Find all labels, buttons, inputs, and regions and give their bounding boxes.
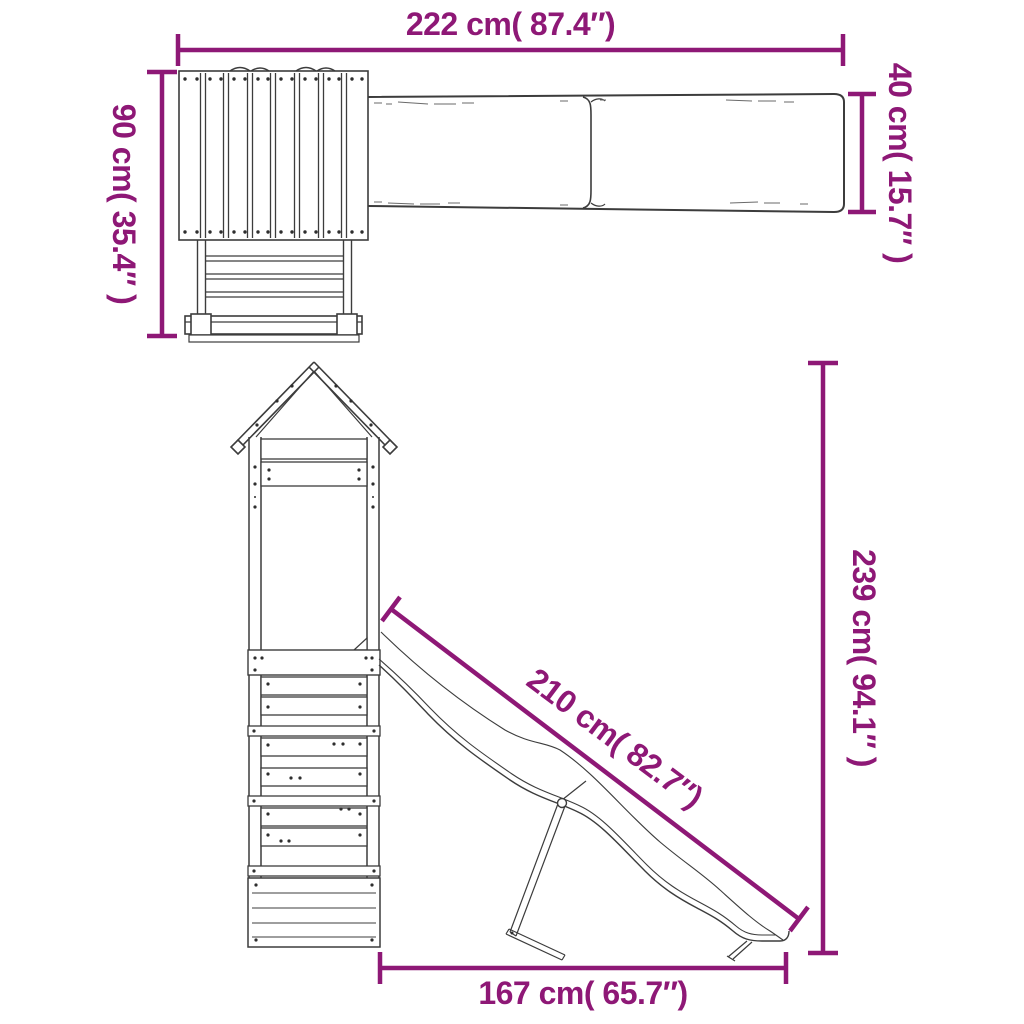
gusset-triangle bbox=[354, 638, 367, 650]
platform-band bbox=[248, 638, 380, 675]
leg-bracket bbox=[562, 781, 586, 800]
dim-line-slide-width bbox=[848, 94, 876, 212]
top-view bbox=[179, 68, 844, 343]
roof-top-view bbox=[179, 68, 368, 241]
diagram-canvas: 222 cm( 87.4″) 90 cm( 35.4″ ) 40 cm( 15.… bbox=[0, 0, 1024, 1024]
eave-cap-left bbox=[231, 440, 245, 454]
dimension-label-base-depth: 167 cm( 65.7″) bbox=[380, 977, 786, 1009]
leg-joint bbox=[558, 799, 567, 808]
dimension-label-left-depth: 90 cm( 35.4″ ) bbox=[108, 104, 140, 304]
slide-far-rail bbox=[381, 632, 783, 940]
dimension-label-top-width: 222 cm( 87.4″) bbox=[178, 8, 843, 40]
dimension-label-slide-width: 40 cm( 15.7″ ) bbox=[884, 63, 916, 263]
technical-drawing bbox=[0, 0, 1024, 1024]
dim-line-left-depth bbox=[147, 72, 177, 336]
slide-side-view bbox=[379, 632, 789, 961]
ladder-top-view bbox=[185, 240, 362, 342]
dim-line-slide-length bbox=[382, 597, 808, 931]
slide-end-foot bbox=[727, 941, 752, 961]
slat-rows bbox=[248, 658, 380, 947]
roof-screws-side bbox=[257, 386, 371, 425]
side-view bbox=[231, 362, 789, 961]
eave-cap-right bbox=[383, 440, 397, 454]
dim-line-total-height bbox=[808, 363, 838, 953]
slide-support-leg bbox=[506, 781, 586, 960]
upper-beam-panel bbox=[255, 439, 373, 507]
dimension-label-total-height: 239 cm( 94.1″ ) bbox=[848, 549, 880, 767]
slide-top-view bbox=[368, 94, 844, 212]
